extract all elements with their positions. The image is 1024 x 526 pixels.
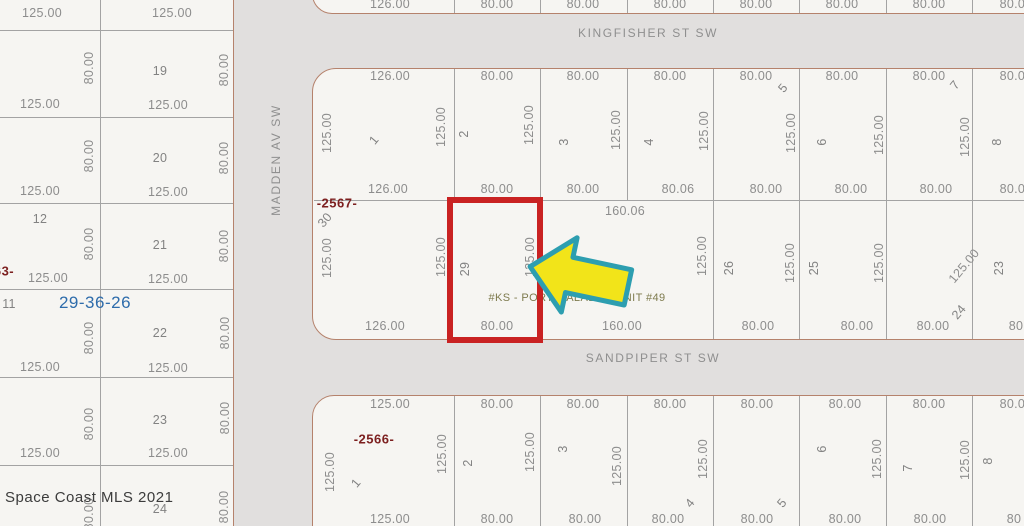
lot-boundary-line <box>0 117 233 118</box>
dimension-label: 80.00 <box>567 0 600 11</box>
dimension-label: 80.00 <box>481 69 514 83</box>
lot-number: 25 <box>807 261 821 276</box>
lot-boundary-line <box>713 0 714 13</box>
lot-number: 3 <box>557 138 571 145</box>
lot-number: 2 <box>461 459 475 466</box>
lot-number: 4 <box>642 138 656 145</box>
dimension-label: 80.00 <box>740 0 773 11</box>
dimension-label: 80.00 <box>829 512 862 526</box>
lot-boundary-line <box>0 203 233 204</box>
lot-number: 21 <box>153 238 168 252</box>
dimension-label: 125.00 <box>435 434 449 474</box>
lot-number: 12 <box>33 212 48 226</box>
dimension-label: 125.00 <box>148 272 188 286</box>
lot-boundary-line <box>0 30 233 31</box>
lot-number: 6 <box>815 138 829 145</box>
dimension-label: 80.06 <box>662 182 695 196</box>
block-number-2566: -2566- <box>354 432 395 447</box>
dimension-label: 80.00 <box>913 397 946 411</box>
block-number-2567: -2567- <box>317 196 358 211</box>
lot-number: 23 <box>153 413 168 427</box>
dimension-label: 125.00 <box>320 113 334 153</box>
dimension-label: 125.00 <box>148 185 188 199</box>
dimension-label: 80.00 <box>481 182 514 196</box>
lot-number: 2 <box>457 130 471 137</box>
dimension-label: 125.00 <box>28 271 68 285</box>
lot-boundary-line <box>886 200 887 339</box>
dimension-label: 126.00 <box>368 182 408 196</box>
mls-watermark: Space Coast MLS 2021 <box>5 489 173 506</box>
dimension-label: 80 <box>1007 512 1022 526</box>
dimension-label: 125.00 <box>148 446 188 460</box>
lot-boundary-line <box>540 396 541 526</box>
lot-boundary-line <box>100 0 101 526</box>
dimension-label: 125.00 <box>697 111 711 151</box>
dimension-label: 80.00 <box>829 397 862 411</box>
dimension-label: 80.00 <box>82 322 96 355</box>
lot-boundary-line <box>886 396 887 526</box>
dimension-label: 80.00 <box>913 69 946 83</box>
dimension-label: 125.00 <box>320 238 334 278</box>
lot-number: 8 <box>981 457 995 464</box>
dimension-label: 80.00 <box>917 319 950 333</box>
dimension-label: 80.00 <box>741 397 774 411</box>
dimension-label: 80.00 <box>82 228 96 261</box>
lot-boundary-line <box>972 396 973 526</box>
lot-number: 22 <box>153 326 168 340</box>
street-label-madden: MADDEN AV SW <box>269 104 283 216</box>
dimension-label: 125.00 <box>148 361 188 375</box>
lot-boundary-line <box>0 465 233 466</box>
dimension-label: 125.00 <box>610 446 624 486</box>
lot-boundary-line <box>713 69 714 200</box>
dimension-label: 125.00 <box>609 110 623 150</box>
dimension-label: 125.00 <box>20 97 60 111</box>
lot-boundary-line <box>314 200 1024 201</box>
dimension-label: 125.00 <box>152 6 192 20</box>
lot-number: 20 <box>153 151 168 165</box>
dimension-label: 125.00 <box>434 237 448 277</box>
dimension-label: 80.00 <box>835 182 868 196</box>
section-township-range: 29-36-26 <box>59 293 131 313</box>
dimension-label: 80.00 <box>217 142 231 175</box>
dimension-label: 125.00 <box>696 439 710 479</box>
lot-boundary-line <box>799 200 800 339</box>
dimension-label: 80.00 <box>82 140 96 173</box>
dimension-label: 80.00 <box>654 0 687 11</box>
lot-boundary-line <box>713 396 714 526</box>
dimension-label: 80.00 <box>567 182 600 196</box>
dimension-label: 80.00 <box>82 408 96 441</box>
dimension-label: 80.00 <box>567 69 600 83</box>
lot-number: 19 <box>153 64 168 78</box>
dimension-label: 125.00 <box>370 512 410 526</box>
dimension-label: 80.00 <box>1000 397 1024 411</box>
dimension-label: 80.00 <box>654 397 687 411</box>
highlight-arrow-icon <box>524 227 634 327</box>
lot-boundary-line <box>0 377 233 378</box>
dimension-label: 80.00 <box>481 0 514 11</box>
lot-boundary-line <box>454 396 455 526</box>
dimension-label: 125.00 <box>323 452 337 492</box>
lot-boundary-line <box>799 69 800 200</box>
dimension-label: 125.00 <box>434 107 448 147</box>
lot-boundary-line <box>454 69 455 200</box>
dimension-label: 125.00 <box>22 6 62 20</box>
lot-boundary-line <box>540 69 541 200</box>
lot-boundary-line <box>972 200 973 339</box>
dimension-label: 125.00 <box>695 236 709 276</box>
lot-boundary-line <box>886 69 887 200</box>
lot-boundary-line <box>540 0 541 13</box>
dimension-label: 125.00 <box>872 115 886 155</box>
dimension-label: 125.00 <box>370 397 410 411</box>
dimension-label: 125.00 <box>958 440 972 480</box>
dimension-label: 125.00 <box>20 446 60 460</box>
lot-boundary-line <box>454 0 455 13</box>
dimension-label: 80.00 <box>826 0 859 11</box>
dimension-label: 125.00 <box>20 184 60 198</box>
dimension-label: 125.00 <box>148 98 188 112</box>
dimension-label: 80.00 <box>82 52 96 85</box>
dimension-label: 80.00 <box>567 397 600 411</box>
arrow-shape <box>522 229 636 324</box>
dimension-label: 80.00 <box>654 69 687 83</box>
dimension-label: 80.00 <box>569 512 602 526</box>
lot-number: 6 <box>815 445 829 452</box>
dimension-label: 160.06 <box>605 204 645 218</box>
dimension-label: 80.00 <box>217 230 231 263</box>
dimension-label: 125.00 <box>784 113 798 153</box>
dimension-label: 125.00 <box>870 439 884 479</box>
dimension-label: 80.00 <box>218 317 232 350</box>
lot-number: 26 <box>722 261 736 276</box>
lot-number: 11 <box>2 297 16 311</box>
lot-number: 8 <box>990 138 1004 145</box>
dimension-label: 125.00 <box>20 360 60 374</box>
dimension-label: 80.00 <box>217 54 231 87</box>
dimension-label: 126.00 <box>365 319 405 333</box>
lot-boundary-line <box>799 0 800 13</box>
lot-boundary-line <box>627 396 628 526</box>
lot-boundary-line <box>972 69 973 200</box>
lot-boundary-line <box>0 289 233 290</box>
lot-boundary-line <box>886 0 887 13</box>
lot-boundary-line <box>627 69 628 200</box>
dimension-label: 80.00 <box>920 182 953 196</box>
dimension-label: 80.00 <box>1000 0 1024 11</box>
dimension-label: 80.00 <box>1000 69 1024 83</box>
lot-boundary-line <box>627 0 628 13</box>
block-2566 <box>312 395 1024 526</box>
street-label-kingfisher: KINGFISHER ST SW <box>578 26 718 40</box>
lot-number: 23 <box>992 261 1006 276</box>
block-number-partial: 63- <box>0 264 14 279</box>
dimension-label: 80.00 <box>1000 182 1024 196</box>
block-2567 <box>312 68 1024 340</box>
dimension-label: 125.00 <box>523 432 537 472</box>
dimension-label: 80.00 <box>218 402 232 435</box>
dimension-label: 80.00 <box>841 319 874 333</box>
dimension-label: 126.00 <box>370 0 410 11</box>
dimension-label: 80.00 <box>740 69 773 83</box>
lot-boundary-line <box>713 200 714 339</box>
lot-number: 3 <box>556 445 570 452</box>
dimension-label: 80.00 <box>481 397 514 411</box>
street-label-sandpiper: SANDPIPER ST SW <box>586 351 720 365</box>
dimension-label: 80.00 <box>217 491 231 524</box>
dimension-label: 125.00 <box>522 105 536 145</box>
dimension-label: 80 <box>1009 319 1024 333</box>
dimension-label: 80.00 <box>742 319 775 333</box>
dimension-label: 80.00 <box>741 512 774 526</box>
dimension-label: 125.00 <box>958 117 972 157</box>
plat-map: KINGFISHER ST SW SANDPIPER ST SW MADDEN … <box>0 0 1024 526</box>
dimension-label: 126.00 <box>370 69 410 83</box>
lot-boundary-line <box>799 396 800 526</box>
lot-number: 7 <box>901 464 915 471</box>
lot-boundary-line <box>972 0 973 13</box>
dimension-label: 125.00 <box>783 243 797 283</box>
dimension-label: 80.00 <box>826 69 859 83</box>
dimension-label: 80.00 <box>750 182 783 196</box>
dimension-label: 80.00 <box>913 0 946 11</box>
dimension-label: 80.00 <box>652 512 685 526</box>
dimension-label: 80.00 <box>481 512 514 526</box>
dimension-label: 125.00 <box>872 243 886 283</box>
dimension-label: 80.00 <box>914 512 947 526</box>
